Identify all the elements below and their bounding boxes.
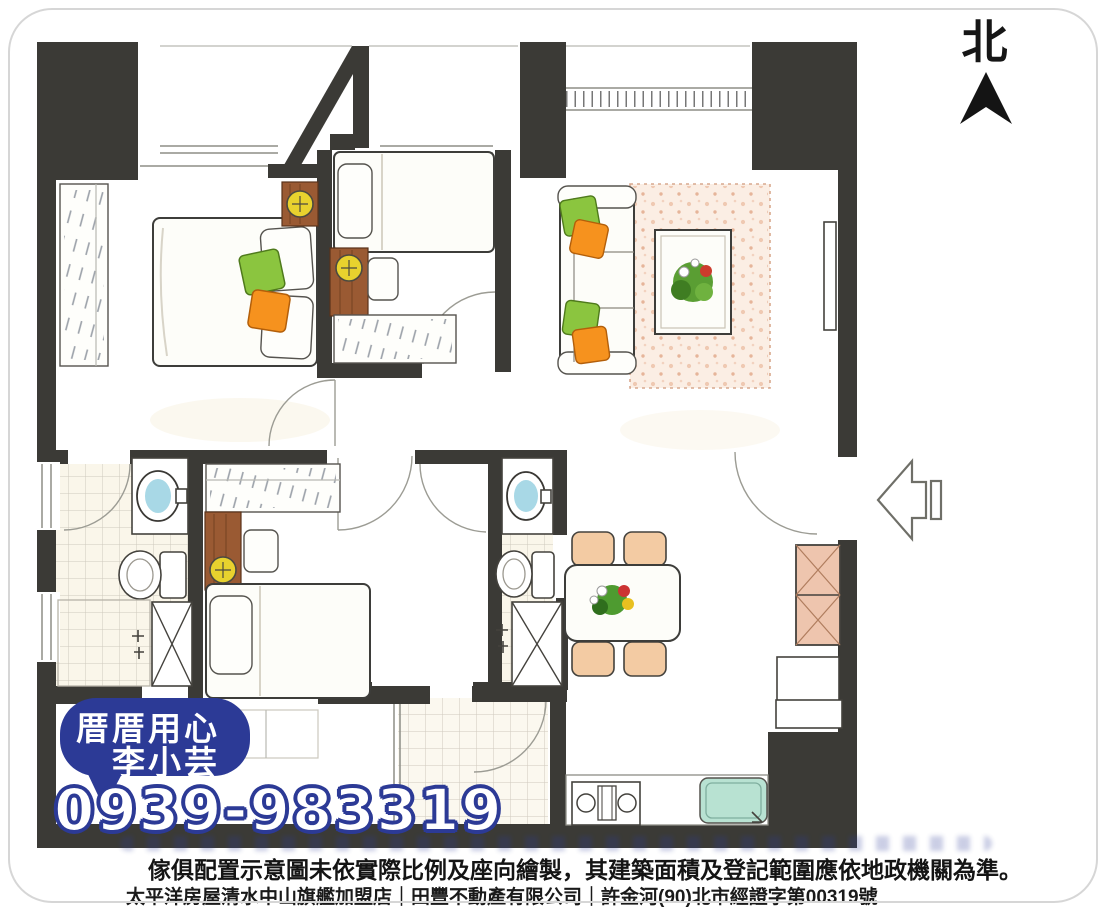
blurred-watermark-strip [120,836,992,851]
living-room [558,184,836,388]
north-label: 北 [952,6,1018,72]
desk-chair [244,530,278,572]
sofa [558,186,636,374]
dining-chair [624,532,666,566]
orange-pillow [247,289,290,332]
vanity-sink [502,458,553,534]
double-bed [153,218,317,366]
wall-bottom-right-block [768,732,857,828]
desk-with-lamp [205,512,241,590]
dining-chair [624,642,666,676]
nightstand-with-lamp [282,182,318,226]
sink-basin [145,479,171,513]
sink-basin [514,480,538,512]
coffee-table [655,230,731,334]
nightstand-with-lamp [330,248,368,316]
single-bed [206,584,370,698]
dining-chair [572,642,614,676]
wall-top-left-block [37,42,138,180]
bedroom-2 [330,152,494,363]
closet [206,464,340,512]
single-bed [334,152,494,252]
north-arrow-icon [960,72,1012,124]
disclaimer-text: 傢俱配置示意圖未依實際比例及座向繪製，其建築面積及登記範圍應依地政機關為準。 [148,851,1022,885]
orange-pillow [569,219,609,259]
desk-chair [368,258,398,300]
counter-appliance [776,700,842,728]
orange-pillow [572,326,610,364]
kitchen-sink [700,778,767,823]
toilet [496,551,554,598]
wardrobe [60,184,108,366]
vanity-sink [132,458,188,534]
kitchen-counter [566,775,768,825]
agent-phone-number: 0939-983319 [54,776,504,844]
dining-area [565,532,680,676]
tall-cabinet [796,545,840,645]
master-bedroom [60,182,318,366]
stove [572,782,640,825]
tv [824,222,836,330]
agency-license-text: 太平洋房屋清水中山旗艦加盟店｜田豐不動產有限公司｜許金河(90)北市經證字第00… [126,882,878,909]
toilet [119,551,186,599]
entrance-arrow-icon [878,461,941,539]
bedroom-3 [205,464,370,698]
green-pillow [238,248,285,295]
closet [334,315,456,363]
dining-chair [572,532,614,566]
wall-top-right-block [752,42,857,170]
